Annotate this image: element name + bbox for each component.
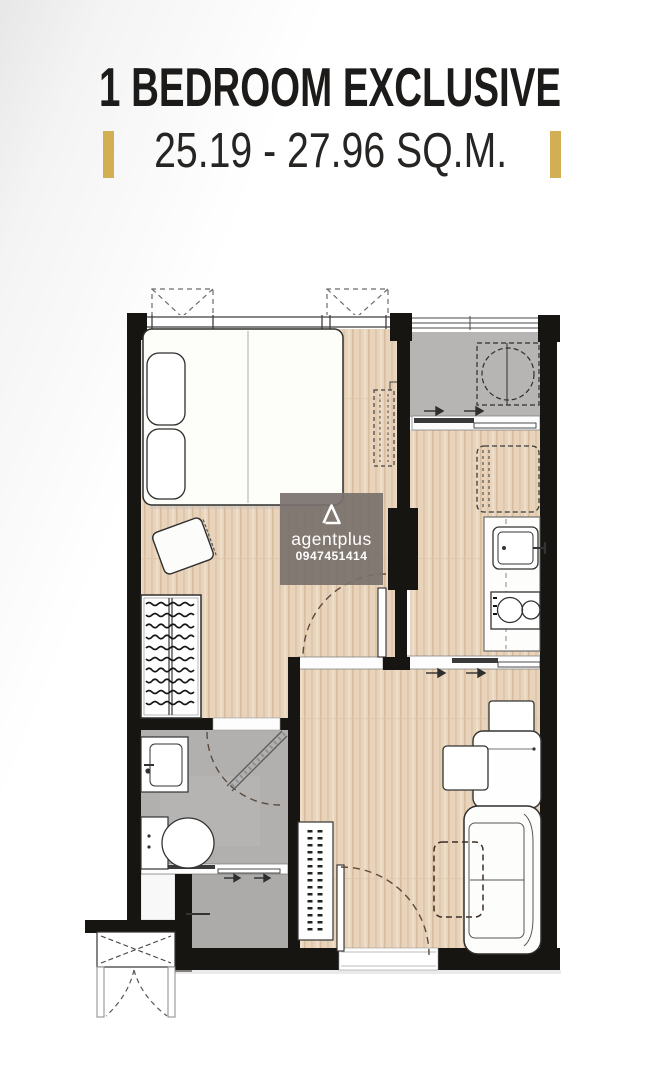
wardrobe bbox=[141, 595, 201, 718]
awning-window-icons bbox=[152, 289, 388, 317]
ac-leg bbox=[97, 967, 104, 1017]
ac-unit bbox=[97, 932, 175, 1017]
toilet bbox=[141, 817, 214, 869]
shaft-niche bbox=[141, 874, 175, 920]
dining-chair bbox=[443, 746, 488, 790]
watermark-brand: agentplus bbox=[291, 529, 371, 549]
kitchen-counter bbox=[484, 517, 546, 651]
ac-leg bbox=[168, 967, 175, 1017]
awning-window-swing bbox=[152, 289, 213, 317]
wall-stub-mid bbox=[383, 657, 410, 670]
entrance-door-leaf bbox=[337, 865, 344, 951]
wall-left bbox=[127, 313, 141, 933]
stove bbox=[491, 592, 540, 629]
sliding-door-balcony bbox=[412, 416, 540, 430]
watermark-phone: 0947451414 bbox=[296, 549, 368, 563]
wall-shaft-block bbox=[388, 508, 418, 590]
sliding-door-kitchen bbox=[403, 656, 540, 669]
kitchen-sink bbox=[493, 527, 546, 569]
watermark: agentplus 0947451414 bbox=[280, 493, 383, 585]
bed-cushion bbox=[147, 353, 185, 425]
toilet-bowl bbox=[162, 818, 214, 868]
floor-foyer bbox=[190, 874, 288, 950]
floor-balcony bbox=[410, 332, 540, 417]
floorplan-svg: agentplus 0947451414 bbox=[0, 0, 661, 1080]
wall-bathroom-top-right bbox=[280, 718, 300, 730]
bathroom-vanity bbox=[141, 737, 188, 792]
ac-louver-swing bbox=[106, 970, 167, 1016]
sink-drain bbox=[502, 546, 506, 550]
awning-window-swing bbox=[327, 289, 388, 317]
wall-divider-lower bbox=[395, 590, 407, 658]
dining-stool bbox=[489, 701, 534, 733]
wall-right bbox=[540, 332, 557, 970]
awning-window-icon bbox=[152, 289, 213, 317]
awning-window-icon bbox=[327, 289, 388, 317]
sofa bbox=[464, 806, 541, 954]
bedroom-door-leaf bbox=[378, 588, 386, 657]
ac-condenser-box bbox=[97, 932, 175, 967]
wall-ac-ledge-top bbox=[85, 920, 190, 933]
wall-divider-upper bbox=[397, 332, 410, 508]
bathroom-door-opening bbox=[213, 718, 280, 730]
entrance-opening bbox=[339, 948, 438, 970]
bedroom-door-opening bbox=[298, 657, 383, 669]
wall-shadow bbox=[175, 970, 561, 974]
bed-cushion bbox=[147, 429, 185, 499]
flyer-page: 1 BEDROOM EXCLUSIVE 25.19 - 27.96 SQ.M. bbox=[0, 0, 661, 1080]
wall-bottom-left bbox=[175, 948, 339, 970]
wall-bathroom-top-left bbox=[141, 718, 213, 730]
tv-console bbox=[298, 822, 333, 940]
